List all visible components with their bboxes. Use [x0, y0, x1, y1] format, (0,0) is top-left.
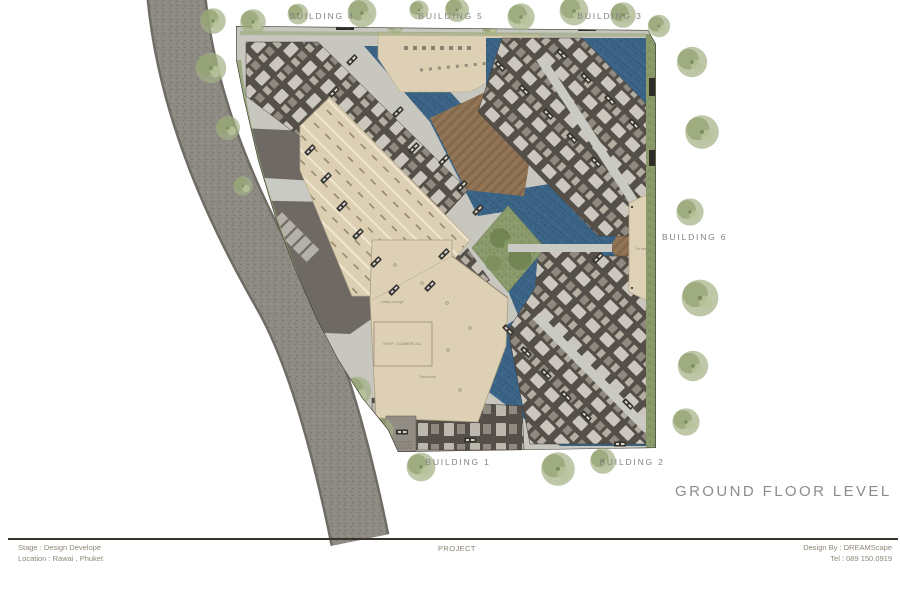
drawing-title: GROUND FLOOR LEVEL [675, 483, 892, 500]
title-block-rule [8, 538, 898, 540]
building-5-label: BUILDING 5 [418, 11, 483, 21]
restroom-annotation: Restroom [420, 375, 436, 379]
stage-text: Stage : Design Develope [18, 542, 103, 553]
building-6-label: BUILDING 6 [662, 232, 727, 242]
building-1-label: BUILDING 1 [425, 457, 490, 467]
site-plan-drawing: Lobby lounge SHOP / COMMERCIAL Restroom … [0, 0, 900, 600]
site-plan-sheet: Lobby lounge SHOP / COMMERCIAL Restroom … [0, 0, 900, 600]
title-block-right: Design By : DREAMScape Tel : 089 150.091… [803, 542, 892, 564]
hedge-north [240, 33, 646, 35]
lobby-annotation: Lobby lounge [381, 300, 404, 304]
project-text: PROJECT [438, 543, 476, 554]
tel-text: Tel : 089 150.0919 [803, 553, 892, 564]
building-4-label: BUILDING 4 [289, 11, 354, 21]
building-2-label: BUILDING 2 [599, 457, 664, 467]
location-text: Location : Rawai , Phuket [18, 553, 103, 564]
design-by-text: Design By : DREAMScape [803, 542, 892, 553]
east-pavilion: On meeting [629, 193, 661, 302]
hedge-east [646, 34, 656, 448]
building-3-label: BUILDING 3 [577, 11, 642, 21]
title-block-left: Stage : Design Develope Location : Rawai… [18, 542, 103, 564]
title-block-center: PROJECT [438, 543, 476, 554]
shop-annotation: SHOP / COMMERCIAL [383, 342, 422, 346]
